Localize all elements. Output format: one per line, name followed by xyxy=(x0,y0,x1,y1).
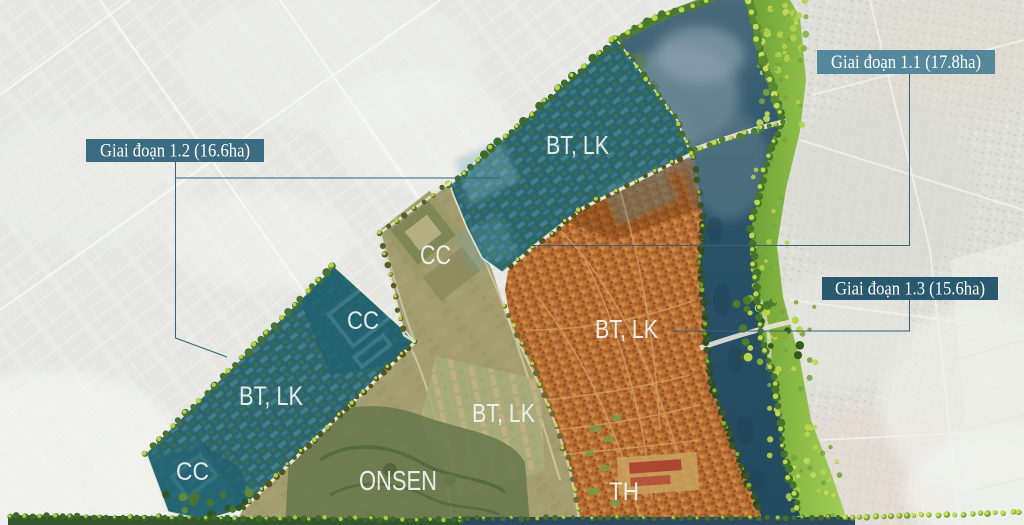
svg-text:Giai đoạn 1.2 (16.6ha): Giai đoạn 1.2 (16.6ha) xyxy=(100,142,250,162)
svg-text:Giai đoạn 1.3 (15.6ha): Giai đoạn 1.3 (15.6ha) xyxy=(835,280,985,300)
svg-text:CC: CC xyxy=(420,240,451,270)
svg-text:ONSEN: ONSEN xyxy=(359,465,437,496)
svg-text:TH: TH xyxy=(609,478,639,506)
svg-text:Giai đoạn 1.1 (17.8ha): Giai đoạn 1.1 (17.8ha) xyxy=(831,53,981,73)
svg-text:BT, LK: BT, LK xyxy=(546,130,610,160)
svg-text:BT, LK: BT, LK xyxy=(239,381,303,411)
svg-text:CC: CC xyxy=(347,307,379,335)
svg-text:BT, LK: BT, LK xyxy=(472,398,536,428)
svg-text:BT, LK: BT, LK xyxy=(595,314,659,344)
svg-text:CC: CC xyxy=(176,458,209,486)
